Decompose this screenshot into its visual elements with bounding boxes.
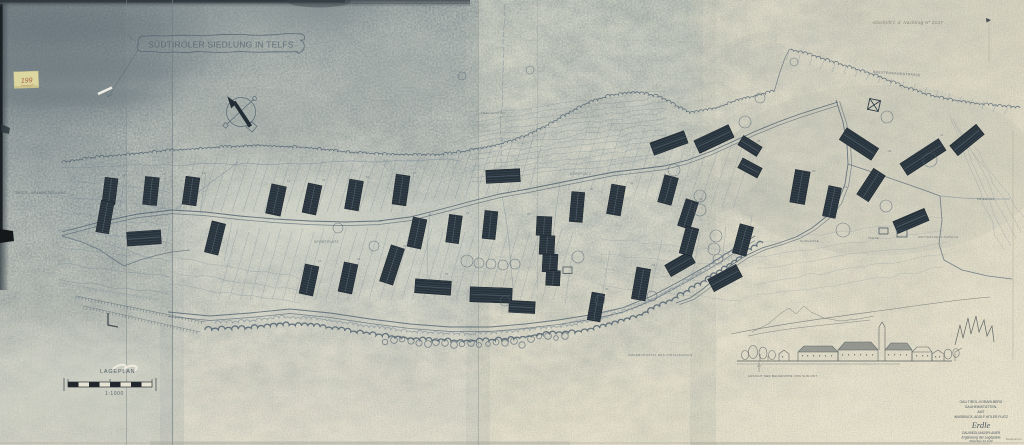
svg-text:31: 31 (630, 181, 634, 185)
svg-text:28: 28 (527, 212, 531, 216)
svg-text:FRIEDHOF: FRIEDHOF (977, 197, 995, 201)
svg-text:DORFPLATZ: DORFPLATZ (570, 172, 591, 176)
svg-text:24: 24 (357, 257, 361, 261)
svg-text:17: 17 (413, 171, 417, 175)
svg-text:41: 41 (844, 185, 848, 189)
svg-text:14: 14 (287, 179, 291, 183)
svg-text:12: 12 (202, 171, 206, 175)
svg-text:23: 23 (318, 259, 322, 263)
svg-text:26: 26 (445, 272, 449, 276)
svg-text:UMGEBUNGSTAL DES INNTALKANALS: UMGEBUNGSTAL DES INNTALKANALS (628, 353, 693, 357)
svg-text:38: 38 (757, 139, 761, 143)
svg-text:GAUHEIMSTÄTTEN-: GAUHEIMSTÄTTEN- (965, 405, 997, 409)
svg-text:München 12.3.43: München 12.3.43 (969, 439, 993, 443)
svg-text:25: 25 (403, 244, 407, 248)
svg-text:SÜDTIROLER SIEDLUNG IN TELFS: SÜDTIROLER SIEDLUNG IN TELFS (148, 40, 294, 50)
svg-text:INNSBRUCK, ADOLF-HITLER-PLATZ: INNSBRUCK, ADOLF-HITLER-PLATZ (954, 415, 1008, 419)
svg-text:10: 10 (122, 173, 126, 177)
svg-text:40: 40 (812, 169, 816, 173)
svg-text:15: 15 (322, 178, 326, 182)
svg-text:SPORTPLATZ: SPORTPLATZ (314, 240, 339, 244)
svg-text:AMT: AMT (977, 410, 984, 414)
svg-text:Abschrift f. d. Nachtrag Nº 21: Abschrift f. d. Nachtrag Nº 2147 (871, 20, 943, 25)
svg-text:1:1000: 1:1000 (105, 391, 124, 397)
svg-text:20: 20 (428, 213, 432, 217)
svg-text:36: 36 (699, 197, 703, 201)
svg-text:TRAFOSTATION: TRAFOSTATION (481, 111, 506, 115)
svg-text:30: 30 (590, 187, 594, 191)
svg-text:LAGEPLAN: LAGEPLAN (100, 369, 135, 375)
svg-text:Bundesarchiv: Bundesarchiv (1006, 437, 1022, 441)
svg-text:44: 44 (940, 133, 944, 137)
svg-text:WIESE: WIESE (868, 236, 879, 240)
svg-text:WESTL. GRABEN-SIEDLUNG: WESTL. GRABEN-SIEDLUNG (16, 191, 66, 195)
svg-text:ANSICHT DER BAUGRUPPE VON SÜD-: ANSICHT DER BAUGRUPPE VON SÜD-OST (748, 374, 817, 378)
svg-text:34: 34 (652, 263, 656, 267)
svg-text:33: 33 (605, 287, 609, 291)
svg-text:21: 21 (466, 211, 470, 215)
svg-text:Erdle: Erdle (971, 420, 991, 430)
svg-text:11: 11 (162, 172, 165, 176)
svg-text:WETTERKREUZ-KAPELLE: WETTERKREUZ-KAPELLE (918, 235, 958, 239)
svg-text:SURGASSE: SURGASSE (800, 239, 819, 243)
svg-text:19: 19 (379, 219, 383, 223)
svg-text:16: 16 (366, 175, 370, 179)
svg-text:GAUSIEDLUNGSPLANER: GAUSIEDLUNGSPLANER (962, 431, 1001, 435)
svg-text:43: 43 (888, 149, 892, 153)
svg-text:199: 199 (21, 77, 33, 85)
svg-text:GAU TIROL-VORARLBERG: GAU TIROL-VORARLBERG (960, 400, 1003, 404)
